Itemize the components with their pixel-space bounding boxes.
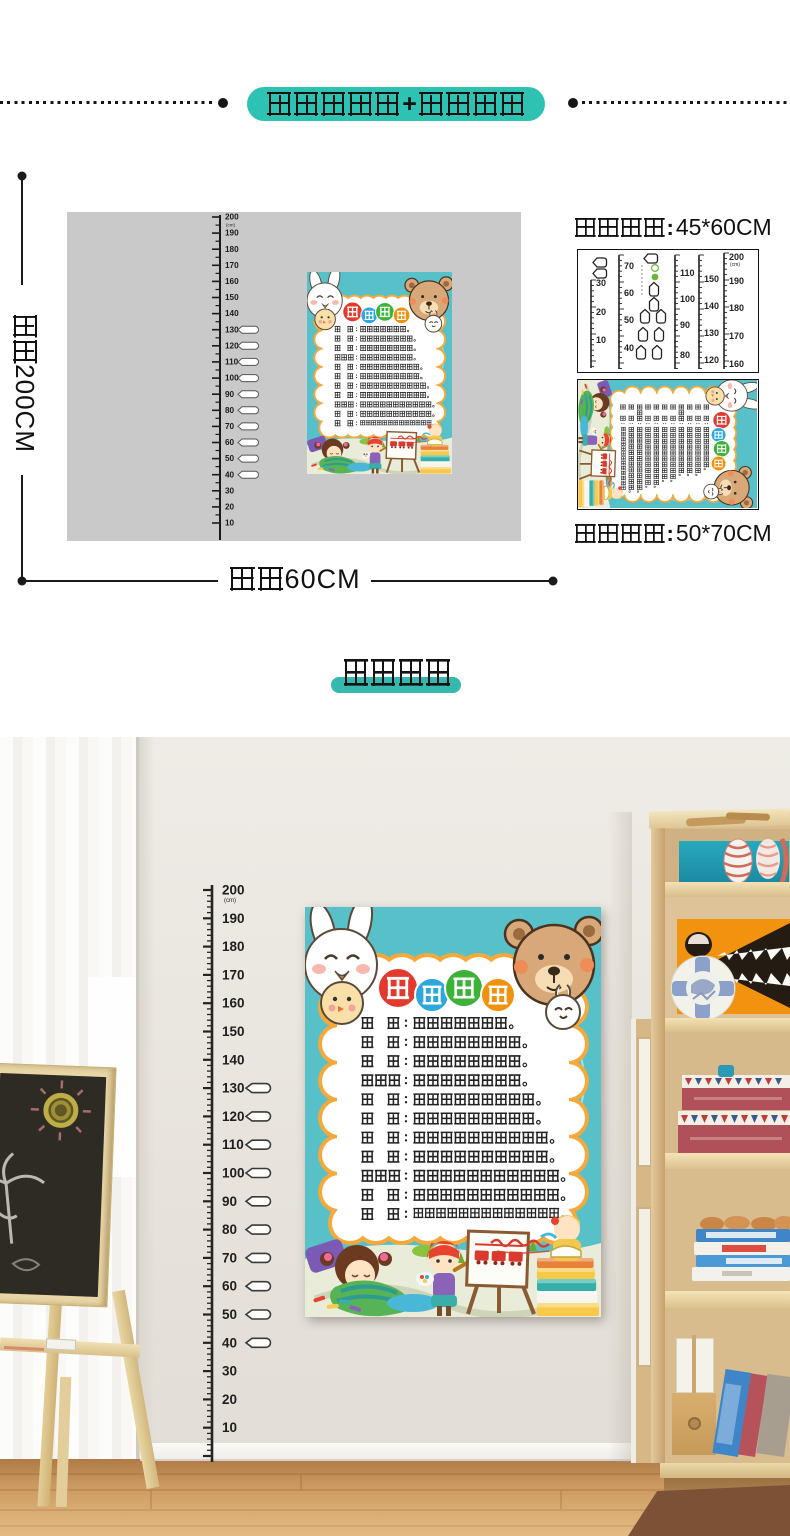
svg-text:130: 130: [225, 325, 239, 334]
svg-text:120: 120: [225, 341, 239, 350]
svg-text:50: 50: [225, 454, 235, 463]
svg-text:160: 160: [225, 277, 239, 286]
svg-text:90: 90: [222, 1194, 237, 1209]
svg-text:130: 130: [704, 328, 719, 338]
svg-text:(cm): (cm): [226, 223, 235, 228]
svg-text:40: 40: [222, 1335, 237, 1350]
svg-text:(cm): (cm): [730, 262, 740, 268]
svg-text:70: 70: [624, 261, 634, 271]
svg-text:150: 150: [704, 274, 719, 284]
svg-text:100: 100: [680, 294, 695, 304]
svg-text:110: 110: [680, 268, 695, 278]
svg-text:20: 20: [225, 503, 235, 512]
svg-text:140: 140: [225, 309, 239, 318]
svg-text:100: 100: [225, 374, 239, 383]
svg-text:60: 60: [624, 288, 634, 298]
svg-text:180: 180: [225, 245, 239, 254]
svg-text:40: 40: [225, 470, 235, 479]
svg-text:70: 70: [225, 422, 235, 431]
svg-text:60: 60: [222, 1279, 237, 1294]
svg-text:200: 200: [222, 883, 245, 898]
svg-text:150: 150: [225, 293, 239, 302]
svg-text:170: 170: [225, 261, 239, 270]
svg-text:10: 10: [222, 1420, 237, 1435]
svg-text:120: 120: [222, 1109, 245, 1124]
svg-text:10: 10: [225, 519, 235, 528]
svg-text:20: 20: [596, 307, 606, 317]
svg-text:200: 200: [729, 252, 744, 262]
svg-text:150: 150: [222, 1024, 245, 1039]
svg-text:(cm): (cm): [224, 898, 236, 904]
svg-text:20: 20: [222, 1392, 237, 1407]
svg-text:180: 180: [729, 303, 744, 313]
svg-text:160: 160: [222, 996, 245, 1011]
svg-text:30: 30: [222, 1364, 237, 1379]
svg-text:190: 190: [729, 276, 744, 286]
svg-text:80: 80: [222, 1222, 237, 1237]
svg-text:50: 50: [624, 315, 634, 325]
svg-text:30: 30: [225, 486, 235, 495]
svg-text:190: 190: [225, 229, 239, 238]
svg-text:80: 80: [680, 350, 690, 360]
svg-text:170: 170: [729, 331, 744, 341]
svg-text:10: 10: [596, 335, 606, 345]
svg-text:180: 180: [222, 939, 245, 954]
svg-text:40: 40: [624, 343, 634, 353]
svg-text:140: 140: [704, 301, 719, 311]
svg-text:160: 160: [729, 359, 744, 369]
svg-text:120: 120: [704, 355, 719, 365]
svg-text:130: 130: [222, 1081, 245, 1096]
svg-text:60: 60: [225, 438, 235, 447]
svg-text:100: 100: [222, 1166, 245, 1181]
svg-text:110: 110: [222, 1137, 244, 1152]
svg-text:110: 110: [225, 358, 239, 367]
svg-text:140: 140: [222, 1052, 245, 1067]
svg-text:90: 90: [225, 390, 235, 399]
svg-text:170: 170: [222, 967, 245, 982]
svg-text:200: 200: [225, 213, 239, 222]
svg-text:190: 190: [222, 911, 245, 926]
svg-text:70: 70: [222, 1250, 237, 1265]
svg-text:30: 30: [596, 278, 606, 288]
svg-text:80: 80: [225, 406, 235, 415]
svg-text:90: 90: [680, 320, 690, 330]
svg-text:50: 50: [222, 1307, 237, 1322]
